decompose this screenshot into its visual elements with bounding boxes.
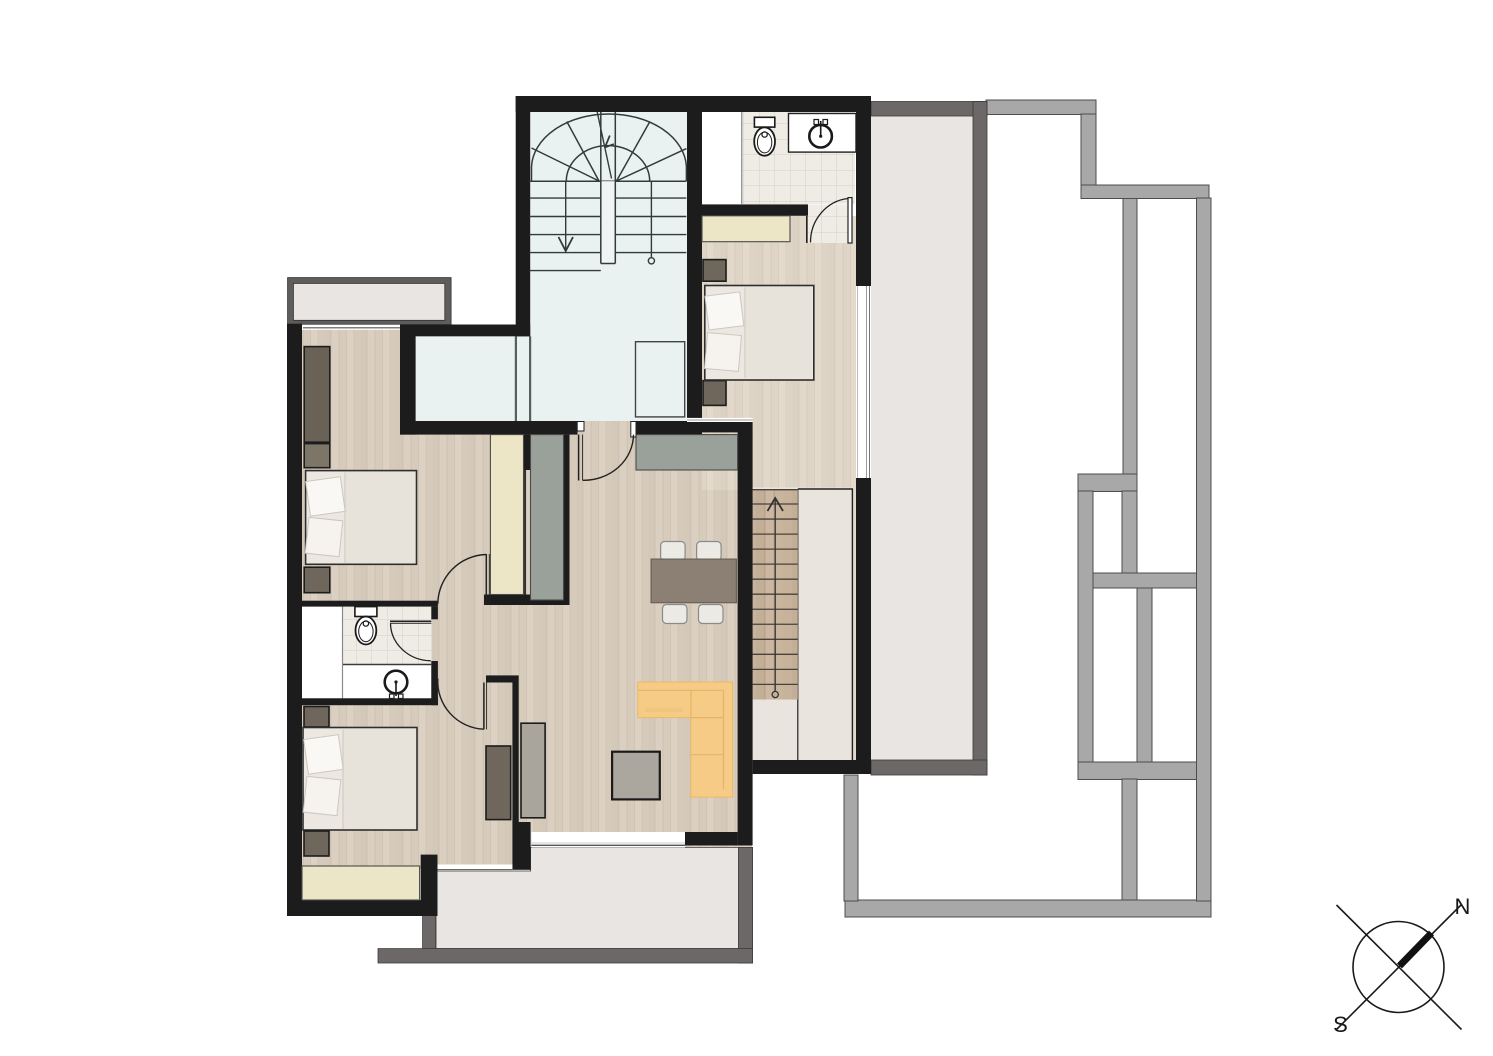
svg-text:N: N	[1455, 894, 1471, 919]
svg-text:S: S	[1333, 1012, 1348, 1037]
